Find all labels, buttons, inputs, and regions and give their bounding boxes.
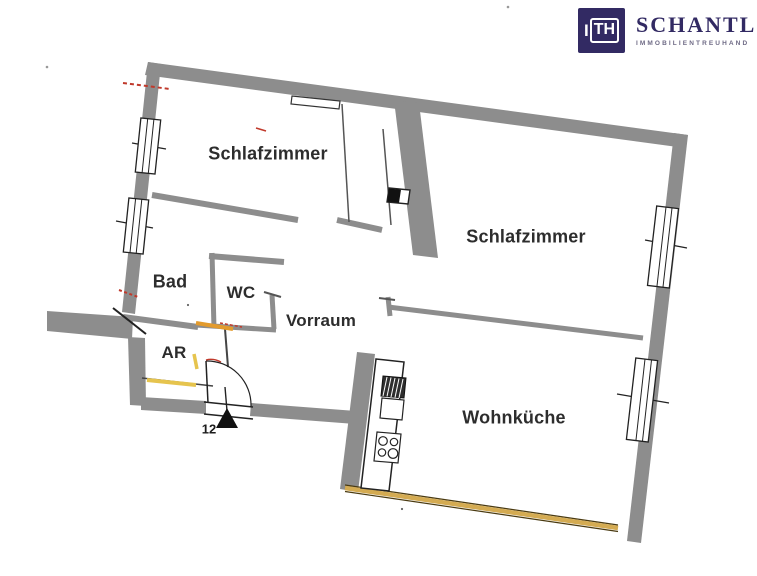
wall-schlafzimmer2-wohnkueche-divider [388,307,643,338]
stove-icon [374,432,401,463]
shaft-fill [388,189,402,203]
door-swing-arc [206,361,251,406]
wall-bottom-entrance-right [250,403,356,424]
room-label-abstellraum: AR [162,343,187,363]
stove-burner [390,438,397,445]
window-frame [123,198,148,254]
line-divider-tick [379,298,395,300]
entrance-door-number: 12 [202,422,216,437]
wall-left-lower [128,337,146,406]
wall-central-corridor [394,100,438,258]
room-label-schlafzimmer-right: Schlafzimmer [466,227,585,248]
artifact-dot [507,6,510,9]
door-leaf [206,361,208,403]
red-tick [256,128,266,131]
line-schlafzimmer-left-boundary [342,104,349,222]
line-central-wall-edge [383,129,391,225]
floorplan-page: Schlafzimmer Schlafzimmer Bad WC Vorraum… [0,0,757,576]
wall-left-stub [47,311,133,339]
stove-burner [379,437,388,446]
stove-burner [388,449,398,459]
artifact-dot [401,508,403,510]
artifact-dot [187,304,189,306]
entrance-door [204,359,253,428]
brand-logo-text: SCHANTL IMMOBILIENTREUHAND [636,8,756,47]
threshold-ar-yellow-vertical [194,354,197,369]
room-label-vorraum: Vorraum [286,311,356,331]
line-ar-right [225,329,228,367]
brand-logo-mark-icon: I TH [578,8,625,53]
window-icon [617,358,669,442]
band-gold [345,488,618,528]
wall-bottom-entrance-left [141,397,206,414]
brand-tagline: IMMOBILIENTREUHAND [636,40,756,47]
threshold-ar-yellow [147,380,196,385]
room-label-wohnkueche: Wohnküche [462,408,565,429]
logo-letters-th: TH [590,18,619,43]
window-icon [116,198,153,254]
wall-wc-right [272,295,274,329]
stove-body [374,432,401,463]
room-label-schlafzimmer-left: Schlafzimmer [208,144,327,165]
window-frame [648,206,679,288]
window-icon [645,206,687,288]
band-edge-bottom [345,492,618,532]
door-thresholds [147,323,233,385]
floorplan-drawing [0,0,757,576]
room-label-bad: Bad [153,272,188,293]
room-label-wc: WC [227,283,256,303]
entrance-threshold-top [204,402,253,407]
balcony-window-band [345,485,618,532]
brand-logo: I TH SCHANTL IMMOBILIENTREUHAND [578,8,756,53]
window-frame [135,118,160,174]
wall-corridor-stub [337,220,382,230]
logo-letter-i: I [584,22,589,39]
entrance-marker-icon [216,408,238,428]
shaft-marker-icon [387,188,410,204]
thin-walls [123,195,643,338]
window-icon [132,118,166,174]
wall-wc-top [209,256,284,262]
entrance-marker-stem [225,387,227,411]
wall-schlafzimmer-bad-diagonal [152,195,298,220]
stove-burner [378,449,385,456]
sink-basin [380,398,404,420]
brand-name: SCHANTL [636,13,756,37]
wall-wc-left [212,253,214,328]
artifact-dot [46,66,49,69]
